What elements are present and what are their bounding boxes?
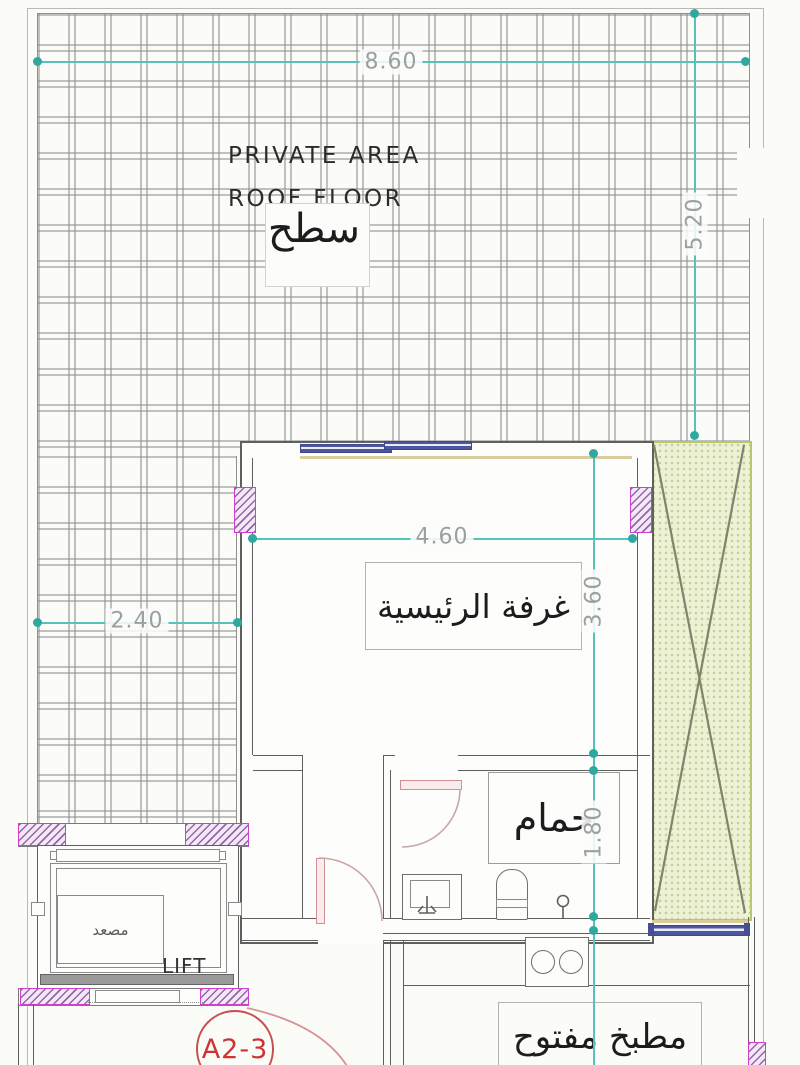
dim-dot: [233, 618, 242, 627]
dim-dot: [589, 926, 598, 935]
roof-floor-plan: مصعد LIFT PRIVATE AREA ROOF FLOOR سطح غر…: [0, 0, 800, 1065]
dim-dot: [248, 534, 257, 543]
master-bedroom-label-box: غرفة الرئيسية: [365, 562, 582, 650]
dim-label-bathroom-height: 1.80: [582, 801, 607, 864]
dim-dot: [33, 618, 42, 627]
bedroom-door-swing-arc: [319, 858, 382, 921]
dim-dot: [628, 534, 637, 543]
dim-dot: [589, 449, 598, 458]
bathroom-door-swing-arc: [402, 789, 460, 847]
dim-dot: [690, 431, 699, 440]
dim-dot: [589, 749, 598, 758]
vanity-faucet-icon: [418, 896, 436, 913]
dim-dot: [589, 766, 598, 775]
dim-label-strip-width: 2.40: [106, 609, 169, 634]
kitchen-label-box: مطبخ مفتوح: [498, 1002, 702, 1065]
dim-label-bedroom-width: 4.60: [411, 525, 474, 550]
floor-drain-icon: [558, 896, 569, 907]
private-area-label: PRIVATE AREA: [228, 143, 421, 169]
dim-label-roof-height: 5.20: [683, 193, 708, 256]
dim-dot: [741, 57, 750, 66]
master-bedroom-label: غرفة الرئيسية: [377, 587, 570, 626]
dim-label-bedroom-height: 3.60: [582, 570, 607, 633]
roof-arabic-label: سطح: [275, 206, 360, 252]
kitchen-label: مطبخ مفتوح: [513, 1017, 687, 1057]
dim-line-bedroom-height: [593, 453, 595, 1065]
dim-dot: [33, 57, 42, 66]
dim-dot: [589, 912, 598, 921]
unit-marker-label: A2-3: [202, 1034, 269, 1065]
dim-dot: [690, 9, 699, 18]
dim-label-roof-width: 8.60: [360, 50, 423, 75]
